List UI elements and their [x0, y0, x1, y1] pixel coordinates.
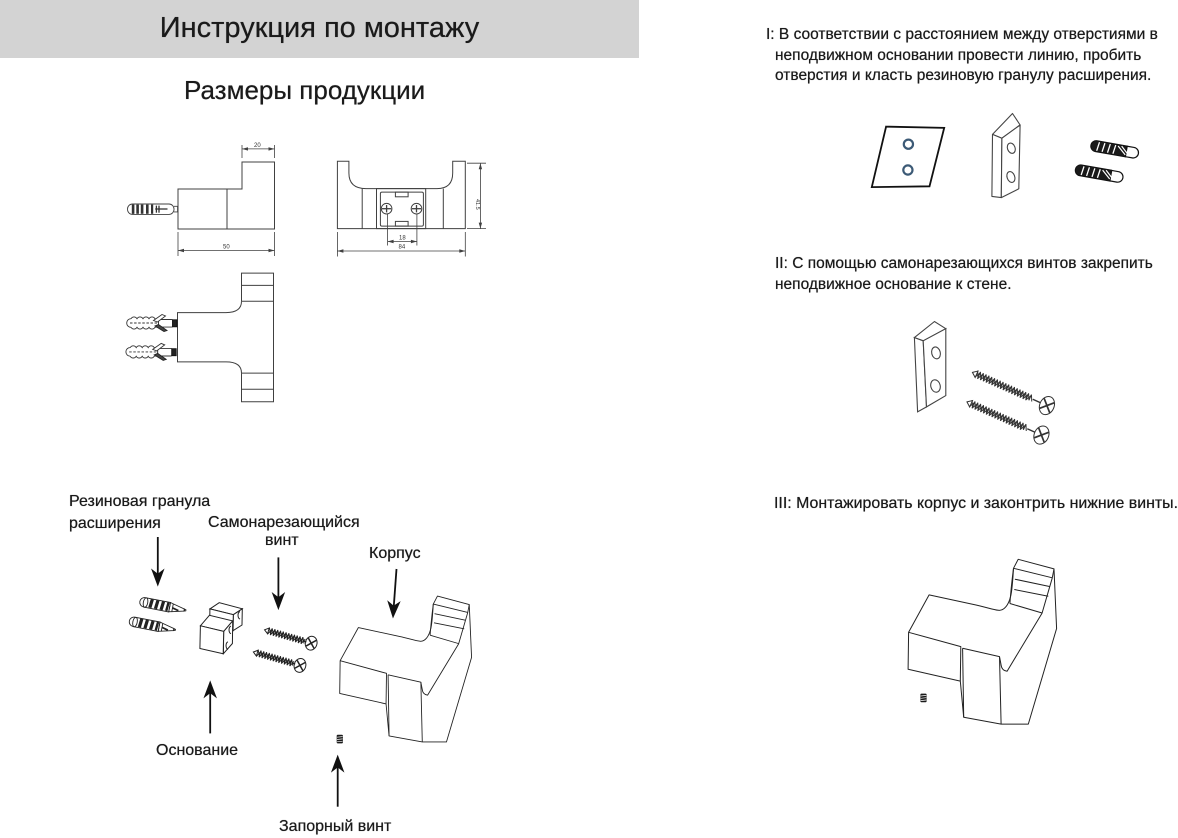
- svg-text:84: 84: [399, 245, 406, 251]
- svg-text:18: 18: [399, 236, 406, 242]
- svg-text:50: 50: [223, 245, 230, 251]
- svg-text:41.5: 41.5: [474, 199, 480, 210]
- svg-text:20: 20: [254, 143, 261, 149]
